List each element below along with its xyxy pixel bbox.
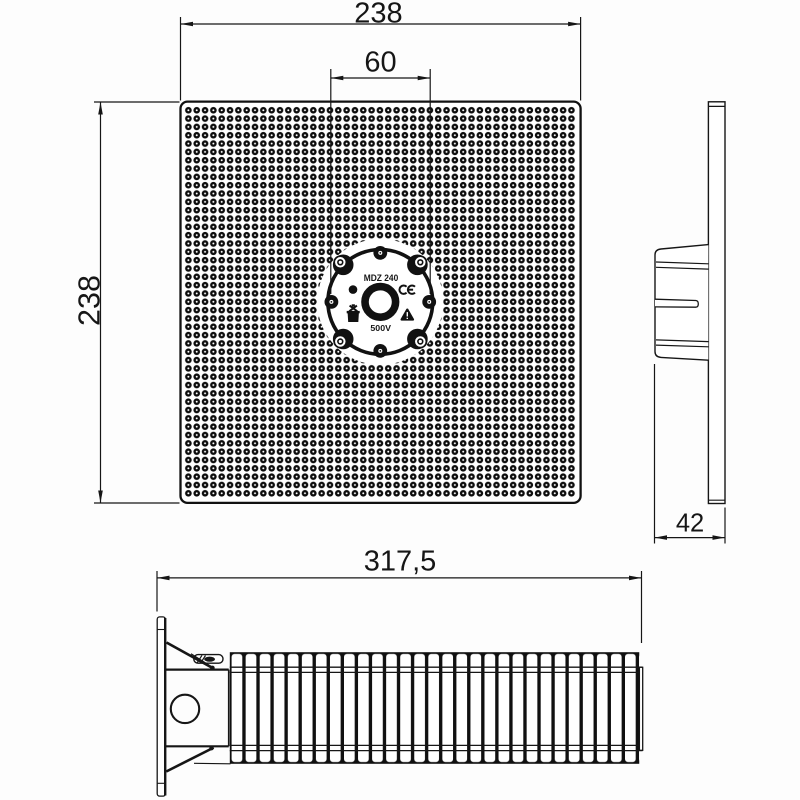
svg-text:238: 238 — [73, 275, 107, 326]
svg-text:42: 42 — [676, 510, 704, 538]
svg-text:60: 60 — [364, 47, 396, 79]
svg-text:500V: 500V — [370, 324, 391, 333]
svg-text:317,5: 317,5 — [364, 546, 437, 578]
svg-text:238: 238 — [354, 0, 402, 29]
svg-text:MDZ 240: MDZ 240 — [364, 272, 399, 283]
